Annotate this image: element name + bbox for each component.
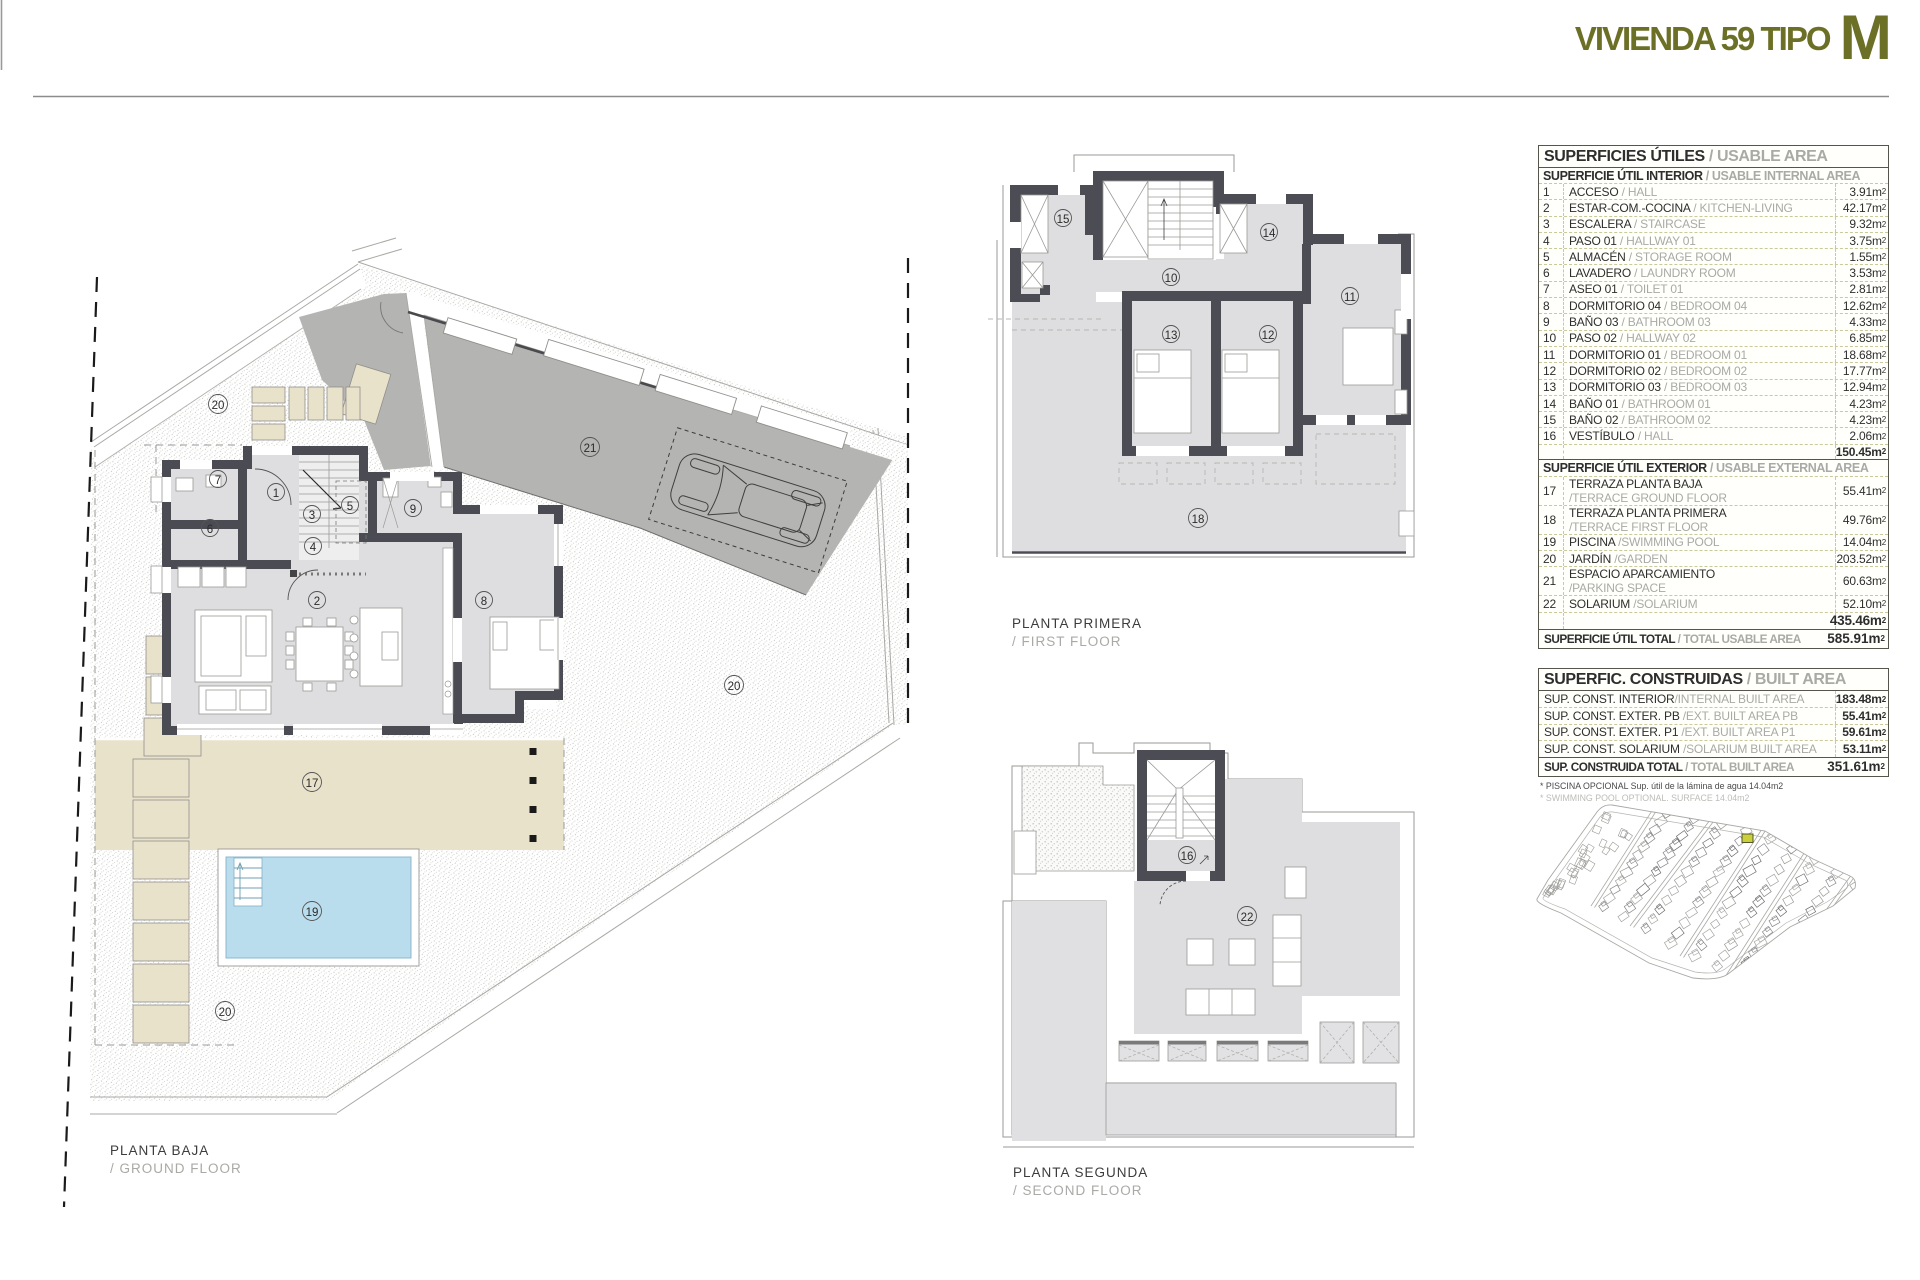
svg-text:14: 14 <box>1263 228 1276 240</box>
svg-text:3: 3 <box>309 510 315 522</box>
svg-text:12: 12 <box>1262 330 1275 342</box>
svg-text:22: 22 <box>1241 912 1254 924</box>
svg-text:13: 13 <box>1165 330 1178 342</box>
svg-text:21: 21 <box>584 443 597 455</box>
svg-text:7: 7 <box>215 475 221 487</box>
svg-text:5: 5 <box>347 501 353 513</box>
svg-text:20: 20 <box>219 1007 232 1019</box>
svg-text:1: 1 <box>273 488 279 500</box>
svg-text:11: 11 <box>1344 292 1356 304</box>
svg-text:2: 2 <box>314 596 320 608</box>
svg-text:19: 19 <box>306 907 319 919</box>
svg-text:16: 16 <box>1181 851 1194 863</box>
svg-text:8: 8 <box>481 596 487 608</box>
svg-text:9: 9 <box>410 504 416 516</box>
svg-text:20: 20 <box>728 681 741 693</box>
svg-text:6: 6 <box>207 524 213 536</box>
svg-text:10: 10 <box>1165 273 1178 285</box>
svg-text:20: 20 <box>212 400 225 412</box>
svg-text:15: 15 <box>1057 214 1070 226</box>
svg-text:18: 18 <box>1192 514 1205 526</box>
svg-text:17: 17 <box>306 778 319 790</box>
svg-text:4: 4 <box>310 542 317 554</box>
